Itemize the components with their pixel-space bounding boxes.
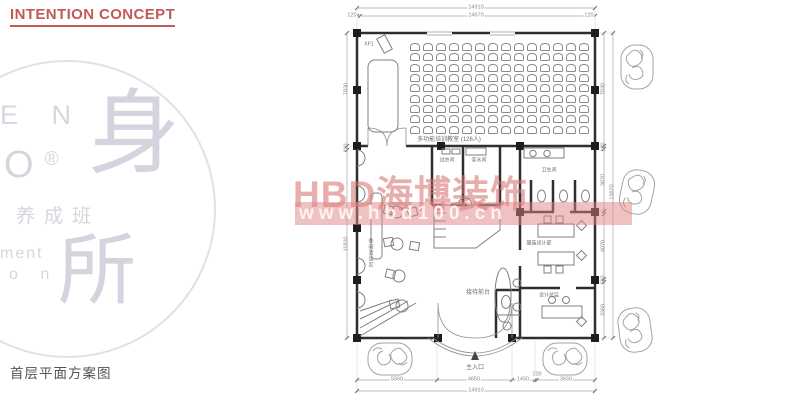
chair bbox=[475, 43, 485, 51]
chair bbox=[566, 95, 576, 103]
dim-top-overall: 14910 bbox=[467, 5, 484, 11]
chair bbox=[488, 74, 498, 82]
reception-desk bbox=[495, 268, 511, 322]
chair bbox=[436, 126, 446, 134]
chair bbox=[501, 64, 511, 72]
chair bbox=[527, 74, 537, 82]
caption: 首层平面方案图 bbox=[10, 362, 112, 382]
sink bbox=[530, 150, 536, 156]
chair bbox=[553, 84, 563, 92]
chair bbox=[553, 105, 563, 113]
chair bbox=[462, 64, 472, 72]
chair bbox=[410, 95, 420, 103]
room-label-classroom: 多功能培训教室 (126人) bbox=[417, 137, 481, 143]
chair bbox=[410, 53, 420, 61]
chair bbox=[475, 74, 485, 82]
dim-left-mid: 110 bbox=[344, 143, 350, 154]
chair bbox=[488, 95, 498, 103]
chair bbox=[436, 74, 446, 82]
dim-left-upper: 7830 bbox=[344, 82, 350, 96]
chair bbox=[436, 105, 446, 113]
chair bbox=[423, 64, 433, 72]
dim-bottom-1: 5060 bbox=[390, 377, 404, 383]
chair bbox=[527, 95, 537, 103]
chair bbox=[501, 84, 511, 92]
chair bbox=[553, 43, 563, 51]
round-table bbox=[396, 300, 408, 312]
chair bbox=[514, 95, 524, 103]
toilet bbox=[538, 190, 546, 202]
chair bbox=[410, 43, 420, 51]
chair bbox=[540, 126, 550, 134]
chair bbox=[527, 115, 537, 123]
dim-bottom-5: 3650 bbox=[559, 377, 573, 383]
chair bbox=[462, 105, 472, 113]
chair bbox=[488, 126, 498, 134]
chair bbox=[449, 115, 459, 123]
chair bbox=[475, 105, 485, 113]
chair bbox=[514, 105, 524, 113]
chair bbox=[540, 43, 550, 51]
dim-left-lower: 11920 bbox=[344, 236, 350, 253]
chair bbox=[475, 126, 485, 134]
chair bbox=[410, 126, 420, 134]
chair bbox=[566, 74, 576, 82]
chair bbox=[410, 115, 420, 123]
chair bbox=[488, 105, 498, 113]
chair bbox=[436, 95, 446, 103]
chair bbox=[488, 64, 498, 72]
tree-icon bbox=[543, 343, 587, 375]
room-label-reception: 接待前台 bbox=[466, 290, 490, 296]
chair bbox=[488, 53, 498, 61]
chair bbox=[579, 95, 589, 103]
chair bbox=[436, 53, 446, 61]
chair bbox=[423, 105, 433, 113]
chair bbox=[579, 115, 589, 123]
chair bbox=[423, 115, 433, 123]
chair bbox=[514, 84, 524, 92]
toilet bbox=[560, 190, 568, 202]
watermark-band: www.hbd100.cn bbox=[295, 202, 632, 225]
chair bbox=[488, 43, 498, 51]
chair bbox=[566, 115, 576, 123]
chair bbox=[540, 64, 550, 72]
chair bbox=[410, 84, 420, 92]
chair bbox=[475, 95, 485, 103]
chair bbox=[501, 53, 511, 61]
chair bbox=[501, 105, 511, 113]
chair bbox=[566, 64, 576, 72]
chair bbox=[501, 95, 511, 103]
chair bbox=[449, 64, 459, 72]
chair bbox=[449, 105, 459, 113]
chair bbox=[449, 95, 459, 103]
dim-right-gap1: 180 bbox=[601, 141, 607, 152]
chair bbox=[423, 126, 433, 134]
chair bbox=[579, 74, 589, 82]
chair bbox=[553, 126, 563, 134]
chair bbox=[527, 84, 537, 92]
dim-top-offset-right: 120 bbox=[583, 13, 594, 19]
chair bbox=[566, 105, 576, 113]
chair bbox=[449, 53, 459, 61]
chair bbox=[462, 115, 472, 123]
podium bbox=[377, 35, 392, 53]
room-label-fitting: 试衣间 bbox=[439, 159, 454, 164]
chair bbox=[410, 105, 420, 113]
chair bbox=[579, 53, 589, 61]
chair bbox=[566, 43, 576, 51]
chair bbox=[462, 43, 472, 51]
room-label-entrance: 主入口 bbox=[466, 365, 484, 371]
room-label-toilet: 卫生间 bbox=[541, 169, 556, 174]
chair bbox=[475, 115, 485, 123]
dim-right-overall: 13870 bbox=[610, 183, 616, 200]
chair bbox=[540, 115, 550, 123]
chair bbox=[553, 53, 563, 61]
chair bbox=[462, 95, 472, 103]
tree-icon bbox=[621, 45, 653, 89]
dim-bottom-3: 1450 bbox=[516, 377, 530, 383]
dim-top-offset-left: 120 bbox=[346, 13, 357, 19]
chair bbox=[462, 84, 472, 92]
dim-bottom-4: 100 bbox=[531, 372, 542, 378]
chair bbox=[527, 53, 537, 61]
chair bbox=[475, 53, 485, 61]
chair bbox=[462, 126, 472, 134]
chair bbox=[449, 126, 459, 134]
chair bbox=[423, 74, 433, 82]
chair bbox=[449, 43, 459, 51]
chair bbox=[579, 126, 589, 134]
tree-icon bbox=[616, 306, 654, 354]
chair bbox=[436, 43, 446, 51]
chair bbox=[423, 53, 433, 61]
chair bbox=[475, 84, 485, 92]
chair bbox=[514, 126, 524, 134]
chair bbox=[579, 105, 589, 113]
dim-right-sec3: 3360 bbox=[601, 303, 607, 317]
chair bbox=[514, 115, 524, 123]
presentation-slide: INTENTION CONCEPT E N O® 养成班 ment o n 身 … bbox=[0, 0, 800, 400]
chair bbox=[514, 53, 524, 61]
chair bbox=[527, 105, 537, 113]
chair bbox=[579, 43, 589, 51]
room-label-design-dept: 服装设计部 bbox=[526, 242, 551, 247]
chair bbox=[488, 84, 498, 92]
room-label-lounge: 休闲洽谈区 bbox=[368, 238, 373, 268]
chair bbox=[423, 43, 433, 51]
chair bbox=[540, 53, 550, 61]
chair bbox=[462, 53, 472, 61]
toilet bbox=[502, 296, 511, 309]
chair bbox=[410, 64, 420, 72]
room-label-director: 设计总监 bbox=[539, 294, 559, 299]
chair bbox=[527, 126, 537, 134]
chair bbox=[566, 84, 576, 92]
chair bbox=[501, 115, 511, 123]
watermark-url: www.hbd100.cn bbox=[295, 202, 632, 225]
tree-icon bbox=[368, 343, 412, 375]
chair bbox=[553, 115, 563, 123]
dim-right-gap2: 180 bbox=[601, 274, 607, 285]
chair bbox=[501, 126, 511, 134]
chair bbox=[449, 84, 459, 92]
chair bbox=[423, 84, 433, 92]
chair bbox=[553, 95, 563, 103]
chair bbox=[566, 126, 576, 134]
chair bbox=[566, 53, 576, 61]
chair bbox=[540, 84, 550, 92]
chair bbox=[423, 95, 433, 103]
stage bbox=[368, 60, 398, 132]
chair bbox=[527, 64, 537, 72]
page-title: INTENTION CONCEPT bbox=[10, 6, 175, 27]
chair bbox=[436, 84, 446, 92]
classroom-seating bbox=[408, 42, 591, 135]
dim-right-sec1: 3870 bbox=[601, 173, 607, 187]
chair bbox=[488, 115, 498, 123]
chair bbox=[462, 74, 472, 82]
chair bbox=[579, 64, 589, 72]
chair bbox=[410, 74, 420, 82]
chair bbox=[553, 74, 563, 82]
dim-right-upper: 7830 bbox=[601, 82, 607, 96]
chair bbox=[475, 64, 485, 72]
chair bbox=[579, 84, 589, 92]
chair bbox=[540, 95, 550, 103]
room-label-pantry: 茶水间 bbox=[471, 159, 486, 164]
chair bbox=[501, 43, 511, 51]
chair bbox=[527, 43, 537, 51]
dim-right-sec2: 4070 bbox=[601, 239, 607, 253]
chair bbox=[436, 64, 446, 72]
dim-bottom-2: 4650 bbox=[467, 377, 481, 383]
entrance-arrow-icon bbox=[471, 351, 479, 360]
chair bbox=[514, 74, 524, 82]
toilet bbox=[582, 190, 590, 202]
chair bbox=[449, 74, 459, 82]
dim-bottom-overall: 14910 bbox=[467, 388, 484, 394]
sink bbox=[544, 150, 550, 156]
chair bbox=[553, 64, 563, 72]
chair bbox=[514, 43, 524, 51]
chair bbox=[501, 74, 511, 82]
chair bbox=[540, 105, 550, 113]
chair bbox=[540, 74, 550, 82]
chair bbox=[514, 64, 524, 72]
chair bbox=[436, 115, 446, 123]
dim-top-inner: 14670 bbox=[467, 13, 484, 19]
equipment-label: XF1 bbox=[364, 43, 373, 48]
